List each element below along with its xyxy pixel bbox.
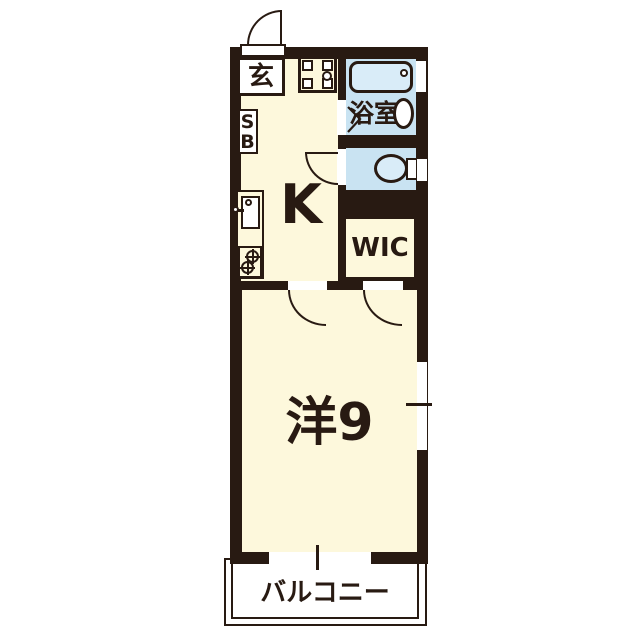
- pan-corner-icon: [322, 60, 333, 71]
- balcony-sliding-window: [269, 552, 371, 564]
- faucet-icon: [245, 199, 252, 206]
- tap-pipe-icon: [238, 209, 244, 212]
- washbasin-icon: [393, 98, 414, 129]
- bathtub-drain-icon: [400, 69, 408, 77]
- side-window-tick: [406, 403, 432, 406]
- bathroom-door-gap: [337, 100, 346, 135]
- bathtub-icon: [349, 61, 413, 93]
- balcony-label: バルコニー: [231, 580, 419, 606]
- shoe-box-label: SB: [240, 112, 255, 152]
- burner-icon: [241, 261, 254, 274]
- entrance-door-arc: [247, 10, 282, 45]
- western-room-label: 洋9: [242, 397, 417, 449]
- washing-machine-pan-icon: [298, 56, 337, 93]
- entrance-door-leaf: [240, 44, 286, 57]
- wic-door-gap: [363, 281, 403, 290]
- pan-drain-icon: [322, 71, 332, 81]
- kitchen-door-gap: [288, 281, 327, 290]
- kitchen-label: K: [271, 178, 331, 232]
- side-window: [417, 362, 427, 450]
- bathroom-window: [416, 61, 426, 92]
- toilet-door-gap: [337, 149, 346, 185]
- pan-corner-icon: [302, 78, 313, 89]
- balcony-window-tick: [316, 545, 319, 570]
- stove-icon: [238, 246, 262, 278]
- pan-corner-icon: [302, 60, 313, 71]
- wic-label: WIC: [343, 235, 417, 261]
- entrance-label: 玄: [237, 64, 285, 90]
- toilet-window: [417, 159, 427, 181]
- floorplan-page: { "floorplan": { "rooms": { "entrance": …: [0, 0, 640, 640]
- bathroom-folding-door-icon: [347, 106, 363, 134]
- toilet-bowl-icon: [374, 154, 408, 183]
